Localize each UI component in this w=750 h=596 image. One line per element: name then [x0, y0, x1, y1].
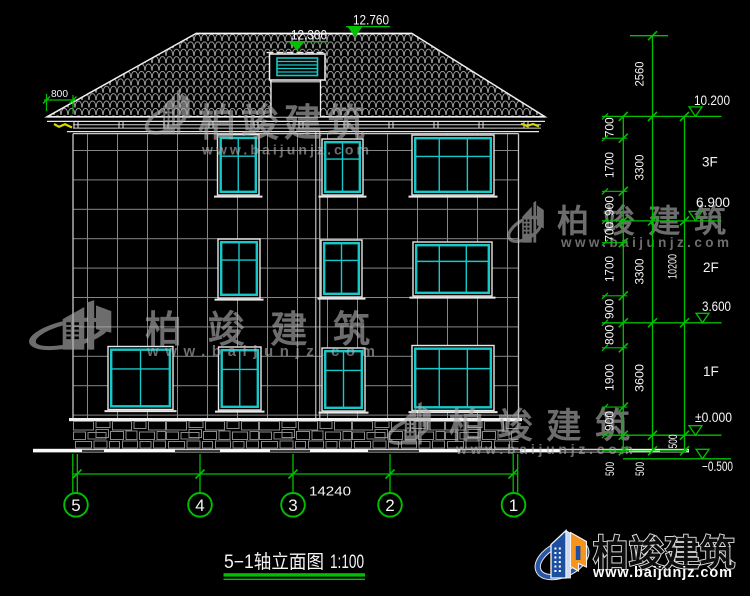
svg-text:500: 500 — [603, 462, 617, 476]
svg-text:3600: 3600 — [633, 364, 647, 392]
svg-text:5: 5 — [71, 496, 80, 515]
svg-text:2F: 2F — [703, 260, 719, 275]
svg-text:3: 3 — [288, 496, 297, 515]
svg-text:700: 700 — [603, 117, 617, 137]
svg-text:12.760: 12.760 — [353, 13, 389, 28]
svg-text:www.baijunjz.com: www.baijunjz.com — [592, 565, 732, 581]
svg-text:800: 800 — [51, 88, 68, 100]
svg-text:±0.000: ±0.000 — [695, 410, 732, 425]
svg-text:1900: 1900 — [603, 364, 617, 391]
svg-text:700: 700 — [603, 222, 617, 242]
svg-text:1:100: 1:100 — [330, 552, 364, 573]
svg-text:−0.500: −0.500 — [702, 459, 733, 474]
svg-text:1F: 1F — [703, 364, 719, 379]
svg-text:10.200: 10.200 — [694, 93, 730, 108]
svg-text:5−1轴立面图: 5−1轴立面图 — [224, 551, 324, 573]
svg-text:6.900: 6.900 — [696, 195, 730, 210]
svg-text:3.600: 3.600 — [702, 299, 731, 314]
svg-text:800: 800 — [603, 325, 617, 345]
svg-text:1: 1 — [509, 496, 518, 515]
svg-text:1700: 1700 — [603, 152, 617, 178]
svg-text:10200: 10200 — [666, 254, 680, 279]
svg-text:900: 900 — [603, 411, 617, 431]
svg-text:3F: 3F — [702, 155, 718, 170]
svg-text:14240: 14240 — [309, 484, 351, 499]
svg-text:2: 2 — [385, 496, 394, 515]
svg-text:4: 4 — [195, 496, 204, 515]
svg-text:2560: 2560 — [633, 61, 647, 86]
svg-text:1700: 1700 — [603, 256, 617, 282]
svg-text:12.300: 12.300 — [291, 28, 327, 43]
svg-text:500: 500 — [666, 434, 680, 448]
svg-text:3300: 3300 — [633, 258, 647, 284]
svg-text:900: 900 — [603, 196, 617, 216]
svg-text:3300: 3300 — [633, 154, 647, 180]
svg-text:900: 900 — [603, 299, 617, 319]
svg-text:500: 500 — [633, 462, 647, 476]
